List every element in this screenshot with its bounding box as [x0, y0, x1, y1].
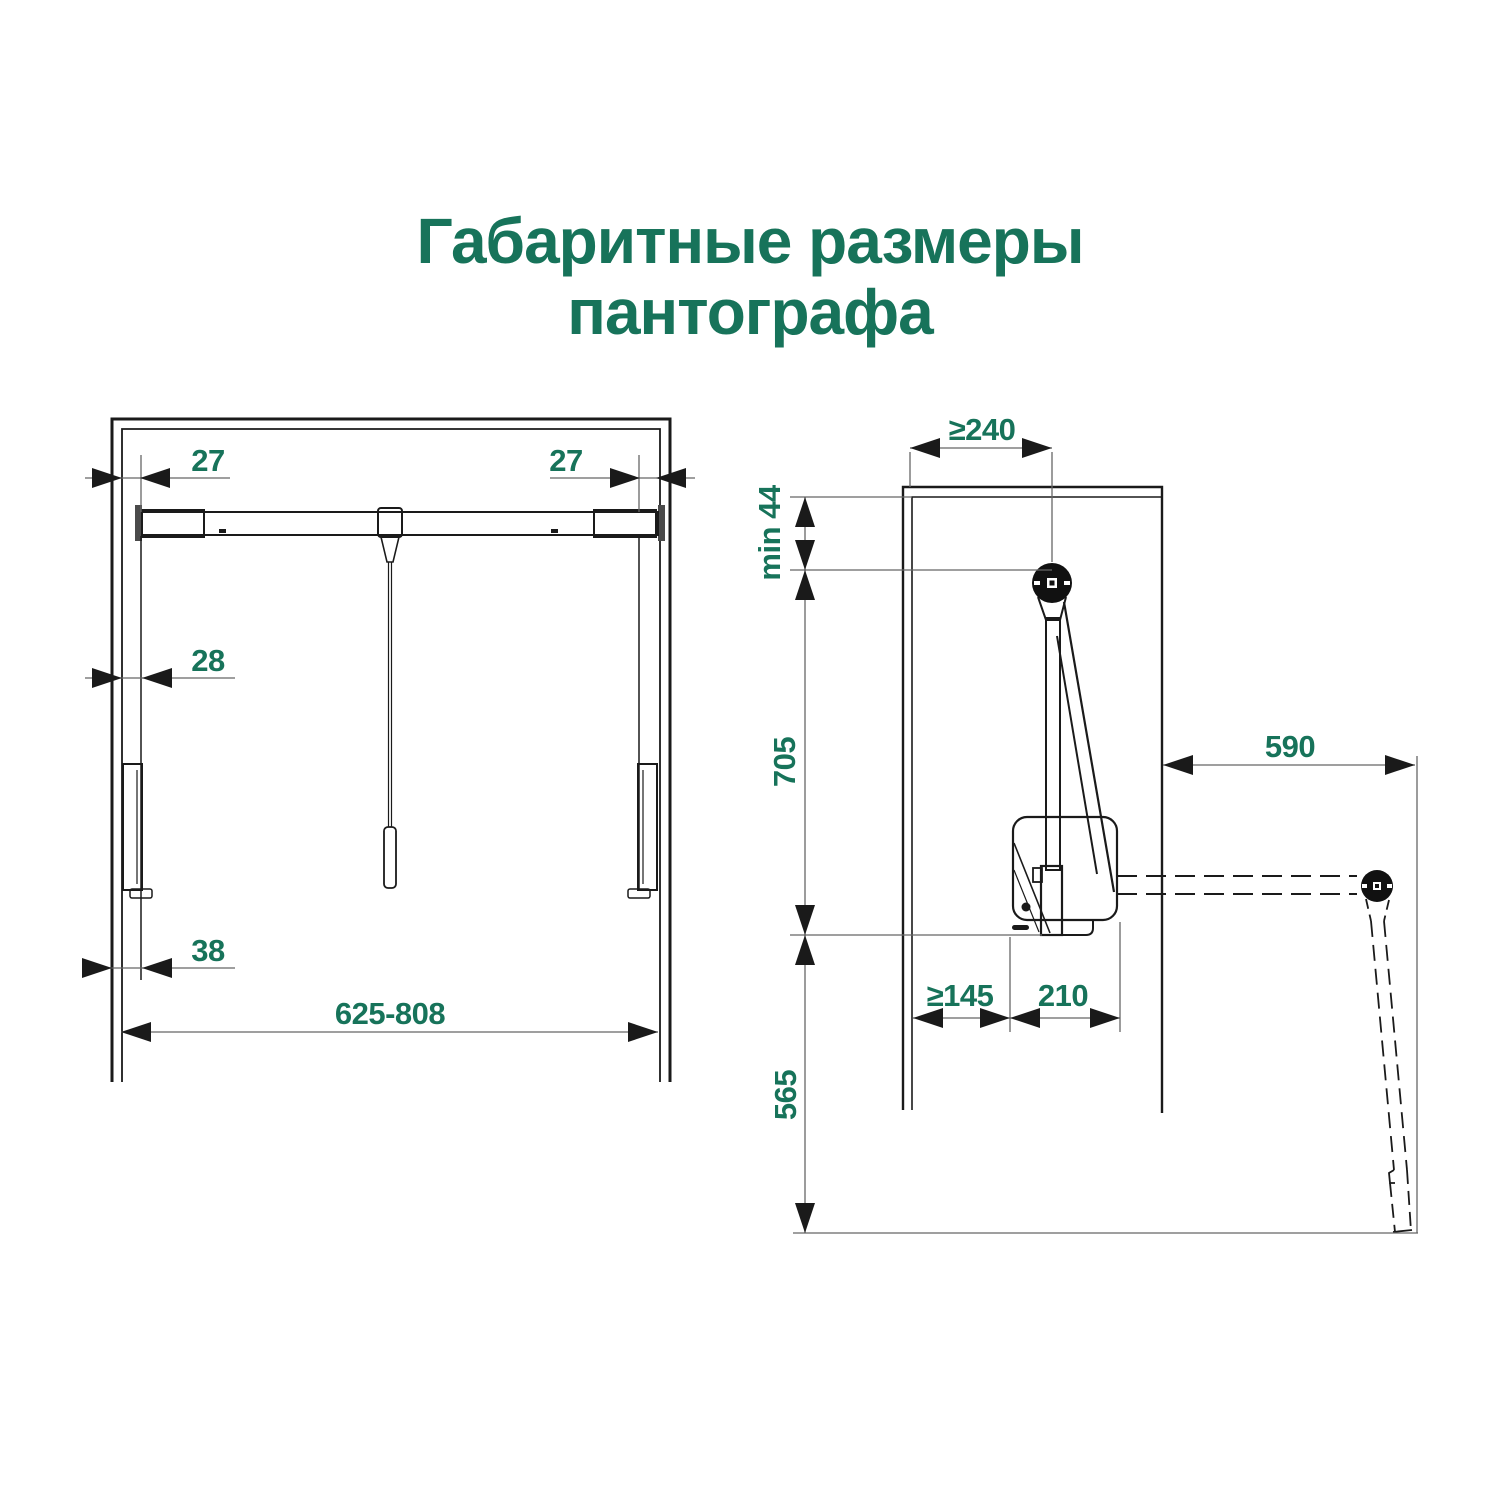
dim-upper-height-label: 705	[767, 737, 802, 787]
body-screw-dot	[1022, 903, 1031, 912]
dim-back-gap-label: ≥145	[927, 978, 994, 1013]
dim-width-label: 625-808	[335, 996, 446, 1031]
dim-top-gap-label: min 44	[752, 484, 787, 580]
dim-depth-label: ≥240	[949, 412, 1016, 447]
dim-top-right-label: 27	[549, 443, 582, 478]
dim-rail-label: 28	[191, 643, 225, 678]
side-view-drawing: ≥240 min 44 705 590 ≥145 210 565	[752, 412, 1418, 1233]
hanging-bar	[135, 505, 665, 888]
title-line-2: пантографа	[567, 276, 934, 348]
pull-handle	[384, 827, 396, 888]
lift-arm	[1064, 602, 1114, 892]
rail-block-right	[638, 764, 657, 890]
lowered-rod	[1371, 921, 1394, 1170]
dim-top-left-label: 27	[191, 443, 224, 478]
front-view-drawing: 27 27 28 38 625-808	[82, 419, 695, 1082]
body-slot-mark	[1012, 925, 1029, 930]
title-line-1: Габаритные размеры	[417, 205, 1084, 277]
dim-lower-height-label: 565	[768, 1070, 803, 1120]
body-lower-plate	[1062, 920, 1093, 935]
cord-funnel	[381, 537, 399, 562]
dim-bottom-label: 38	[191, 933, 225, 968]
rod-handle-notch	[1389, 1170, 1395, 1183]
dimension-drawing-page: Габаритные размеры пантографа	[0, 0, 1500, 1499]
figure-title: Габаритные размеры пантографа	[417, 205, 1084, 348]
dim-reach-label: 590	[1265, 729, 1315, 764]
rod-holder	[1041, 866, 1062, 935]
front-view-arrows	[82, 468, 686, 1042]
pantograph-mechanism	[1012, 563, 1117, 935]
bar-end-plate-right	[658, 505, 665, 541]
rail-block-left	[123, 764, 142, 890]
dim-body-label: 210	[1038, 978, 1088, 1013]
bar-stop-mark-right	[551, 529, 558, 533]
side-rails	[123, 536, 657, 980]
vertical-arm	[1046, 618, 1060, 870]
bar-stop-mark-left	[219, 529, 226, 533]
pantograph-dimensions-figure: Габаритные размеры пантографа	[0, 0, 1500, 1499]
